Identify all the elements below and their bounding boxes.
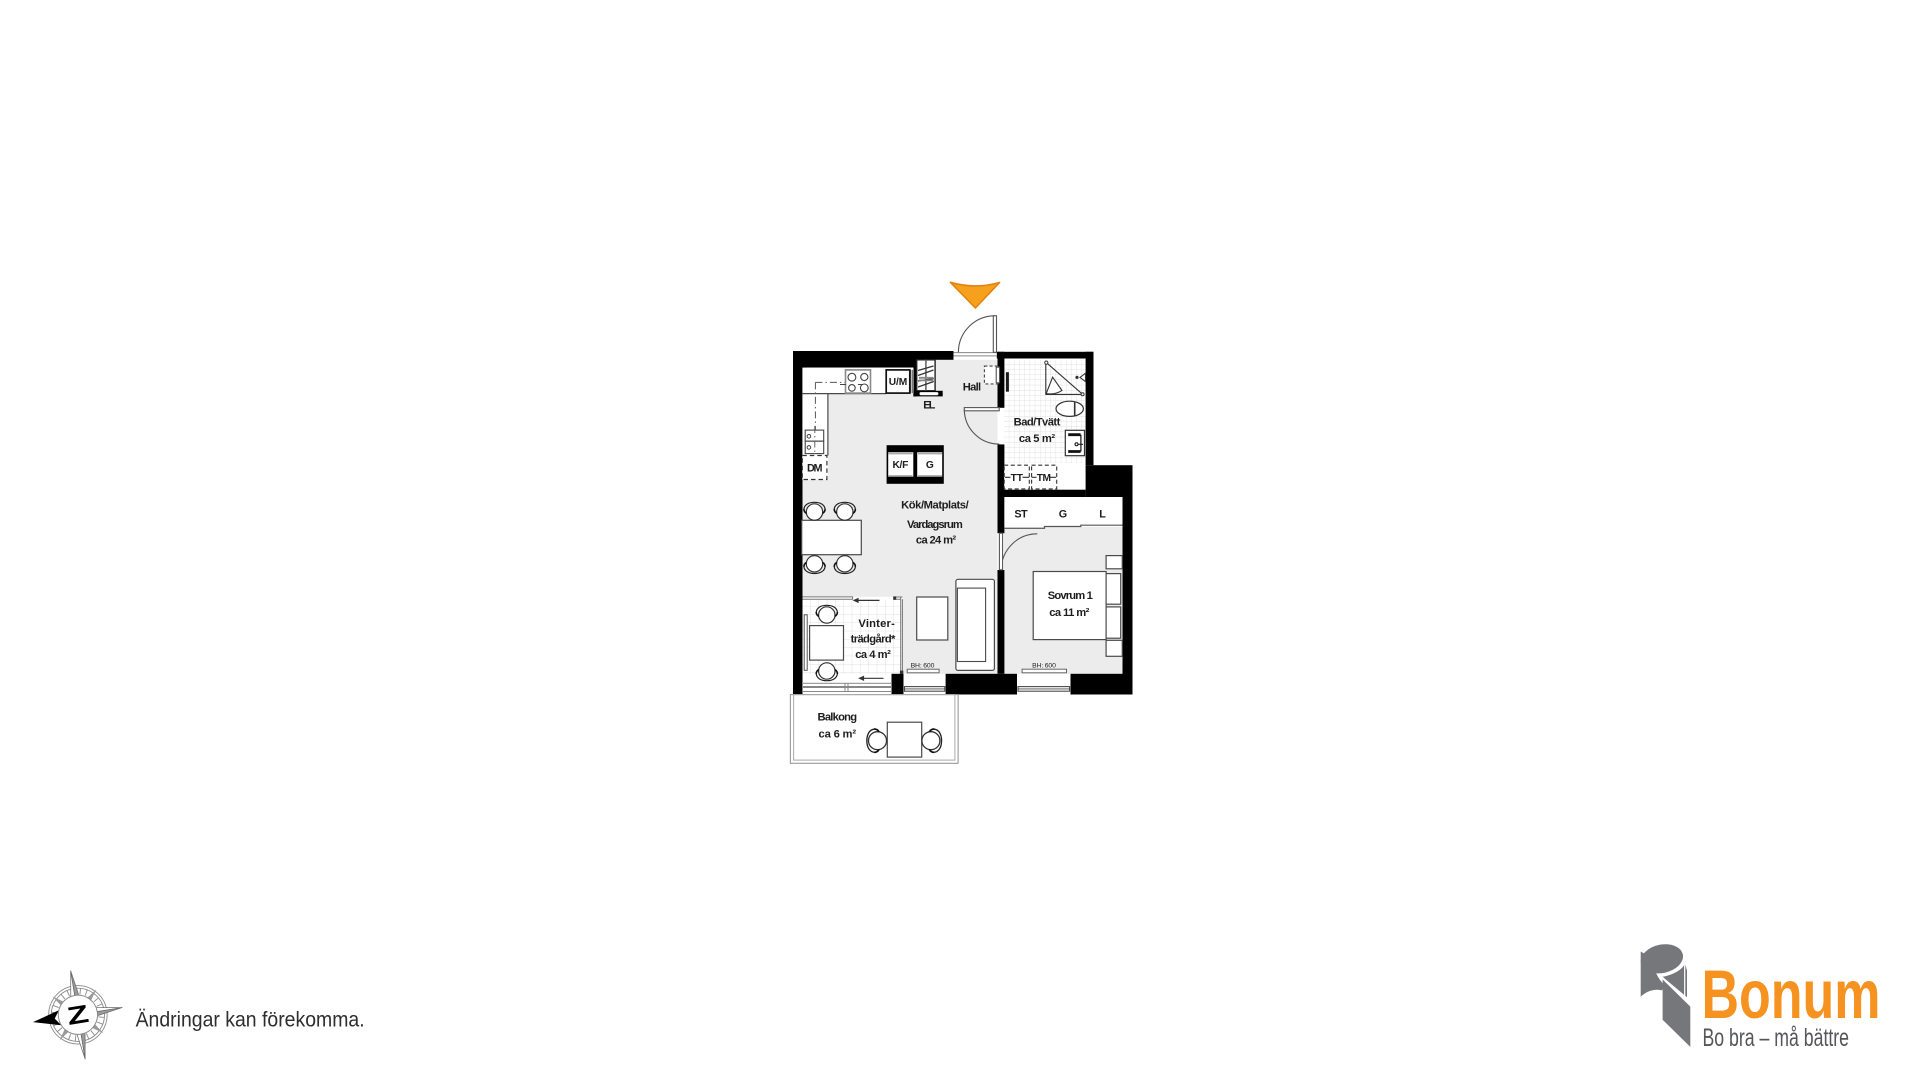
svg-text:Bo bra – må bättre: Bo bra – må bättre: [1703, 1024, 1850, 1052]
svg-text:Sovrum 1: Sovrum 1: [1048, 590, 1093, 602]
svg-text:TM: TM: [1037, 473, 1051, 484]
svg-text:ca 6 m²: ca 6 m²: [819, 729, 857, 741]
svg-text:Ändringar kan förekomma.: Ändringar kan förekomma.: [136, 1009, 365, 1032]
svg-text:G: G: [1059, 509, 1067, 521]
svg-text:U/M: U/M: [889, 377, 908, 388]
svg-text:Hall: Hall: [963, 381, 981, 393]
svg-text:ca 24 m²: ca 24 m²: [916, 534, 956, 546]
svg-text:Kök/Matplats/: Kök/Matplats/: [901, 499, 969, 511]
svg-text:BH: 600: BH: 600: [911, 662, 935, 669]
svg-text:G: G: [926, 460, 934, 471]
svg-text:Balkong: Balkong: [818, 712, 858, 724]
svg-text:trädgård*: trädgård*: [851, 633, 896, 645]
svg-text:Bonum: Bonum: [1702, 956, 1881, 1033]
svg-text:ST: ST: [1014, 509, 1028, 521]
svg-text:ca 5 m²: ca 5 m²: [1019, 433, 1056, 445]
svg-text:Vinter-: Vinter-: [858, 618, 895, 630]
svg-text:ca 4 m²: ca 4 m²: [855, 649, 891, 661]
svg-text:Z: Z: [65, 1000, 91, 1031]
svg-text:EL: EL: [923, 399, 935, 411]
svg-text:BH: 600: BH: 600: [1032, 662, 1056, 669]
svg-text:L: L: [1099, 509, 1106, 521]
svg-text:TT: TT: [1011, 473, 1024, 484]
svg-text:ca 11 m²: ca 11 m²: [1049, 607, 1089, 619]
svg-text:Vardagsrum: Vardagsrum: [907, 519, 963, 531]
svg-text:DM: DM: [807, 463, 823, 475]
svg-text:Bad/Tvätt: Bad/Tvätt: [1014, 416, 1061, 428]
svg-text:K/F: K/F: [893, 460, 909, 471]
